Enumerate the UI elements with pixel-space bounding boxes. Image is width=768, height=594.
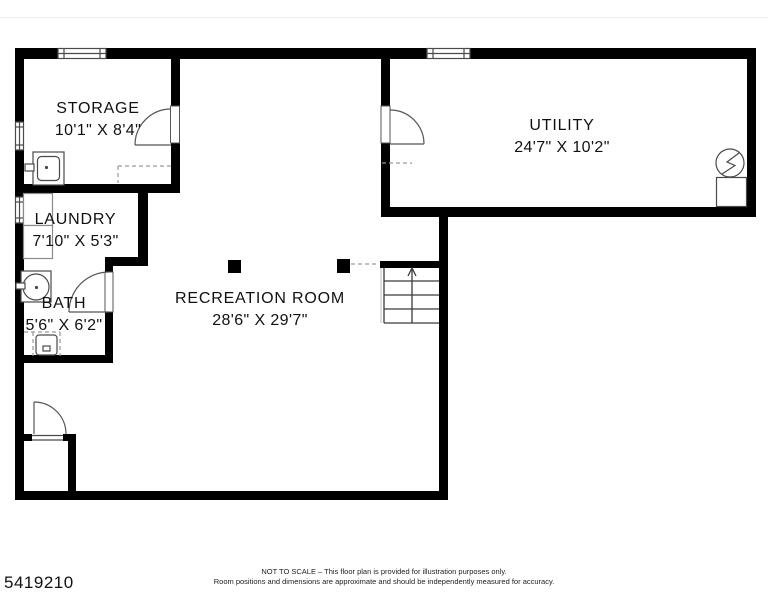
room-name: RECREATION ROOM: [160, 288, 360, 310]
room-dimensions: 28'6" X 29'7": [160, 310, 360, 332]
support-column-icon: [337, 259, 350, 273]
room-label-laundry: LAUNDRY 7'10" X 5'3": [13, 209, 138, 253]
room-dimensions: 5'6" X 6'2": [14, 315, 114, 337]
fixtures-layer: [0, 0, 768, 594]
support-column-icon: [228, 260, 241, 273]
utility-sink-icon: [25, 152, 64, 185]
room-name: LAUNDRY: [13, 209, 138, 231]
water-heater-icon: [716, 149, 747, 207]
room-name: BATH: [14, 293, 114, 315]
room-dimensions: 10'1" X 8'4": [18, 120, 178, 142]
window-icon: [427, 49, 470, 59]
closet-door-icon: [32, 402, 66, 440]
room-label-bath: BATH 5'6" X 6'2": [14, 293, 114, 337]
room-dimensions: 24'7" X 10'2": [462, 137, 662, 159]
disclaimer-text: NOT TO SCALE – This floor plan is provid…: [0, 567, 768, 586]
disclaimer-line-1: NOT TO SCALE – This floor plan is provid…: [0, 567, 768, 577]
utility-door-icon: [381, 106, 424, 144]
window-icon: [58, 49, 106, 59]
room-label-recreation: RECREATION ROOM 28'6" X 29'7": [160, 288, 360, 332]
room-name: UTILITY: [462, 115, 662, 137]
disclaimer-line-2: Room positions and dimensions are approx…: [0, 577, 768, 587]
furnace-box-icon: [717, 178, 747, 207]
room-label-storage: STORAGE 10'1" X 8'4": [18, 98, 178, 142]
stairs-up-icon: [381, 268, 439, 323]
room-name: STORAGE: [18, 98, 178, 120]
dashed-soffit-line: [118, 163, 412, 264]
room-dimensions: 7'10" X 5'3": [13, 231, 138, 253]
floor-plan-canvas: STORAGE 10'1" X 8'4" LAUNDRY 7'10" X 5'3…: [0, 0, 768, 594]
room-label-utility: UTILITY 24'7" X 10'2": [462, 115, 662, 159]
